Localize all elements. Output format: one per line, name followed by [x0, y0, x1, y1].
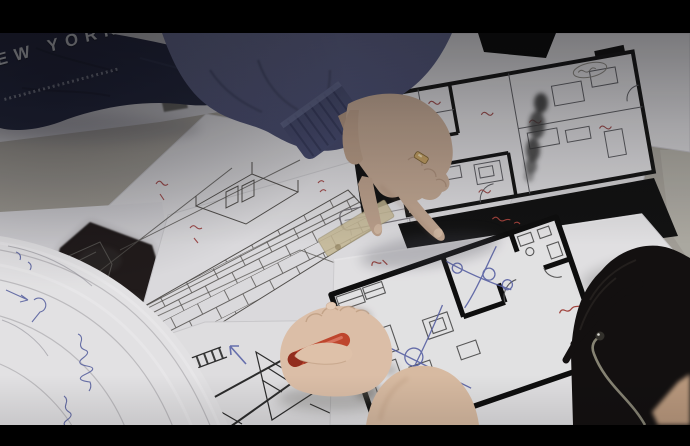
tape-mark: [335, 244, 341, 250]
lens-spec: [597, 333, 600, 336]
letterbox-top: [0, 0, 690, 33]
photo-artwork: [0, 0, 690, 446]
letterbox-bottom: [0, 425, 690, 446]
photo-scene: NEW YORK: [0, 0, 690, 446]
glasses-lens-glint: [596, 332, 605, 341]
